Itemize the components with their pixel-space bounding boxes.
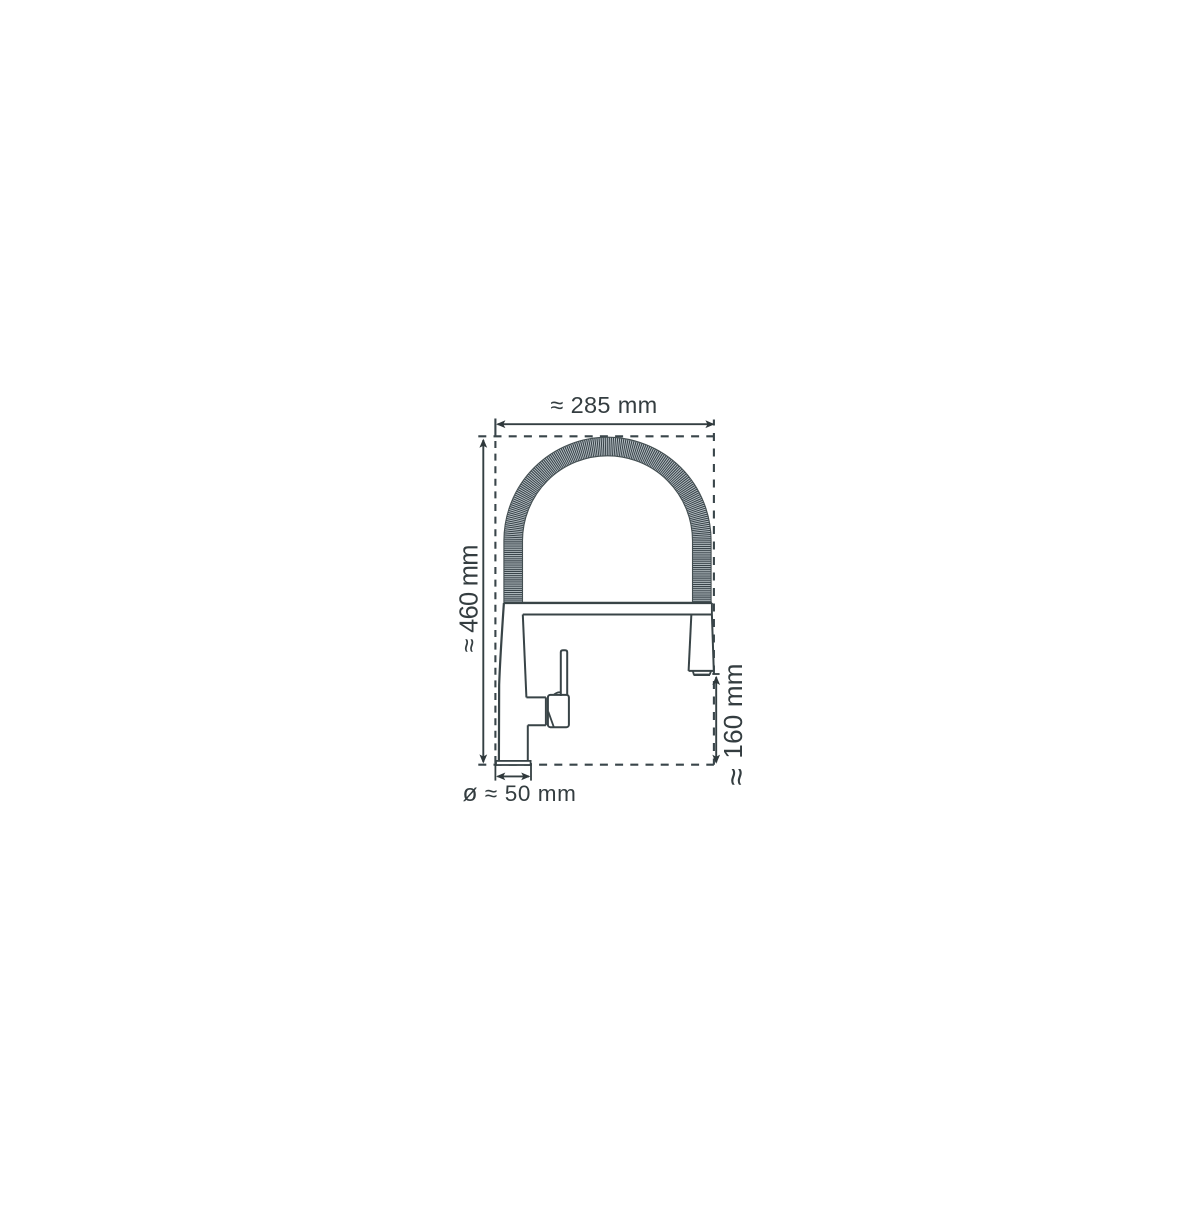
svg-text:ø ≈ 50 mm: ø ≈ 50 mm bbox=[463, 780, 577, 807]
svg-text:160 mm: 160 mm bbox=[718, 663, 748, 758]
svg-text:≈: ≈ bbox=[718, 768, 754, 786]
svg-text:≈ 460 mm: ≈ 460 mm bbox=[456, 545, 484, 652]
svg-text:≈ 285 mm: ≈ 285 mm bbox=[550, 392, 657, 418]
